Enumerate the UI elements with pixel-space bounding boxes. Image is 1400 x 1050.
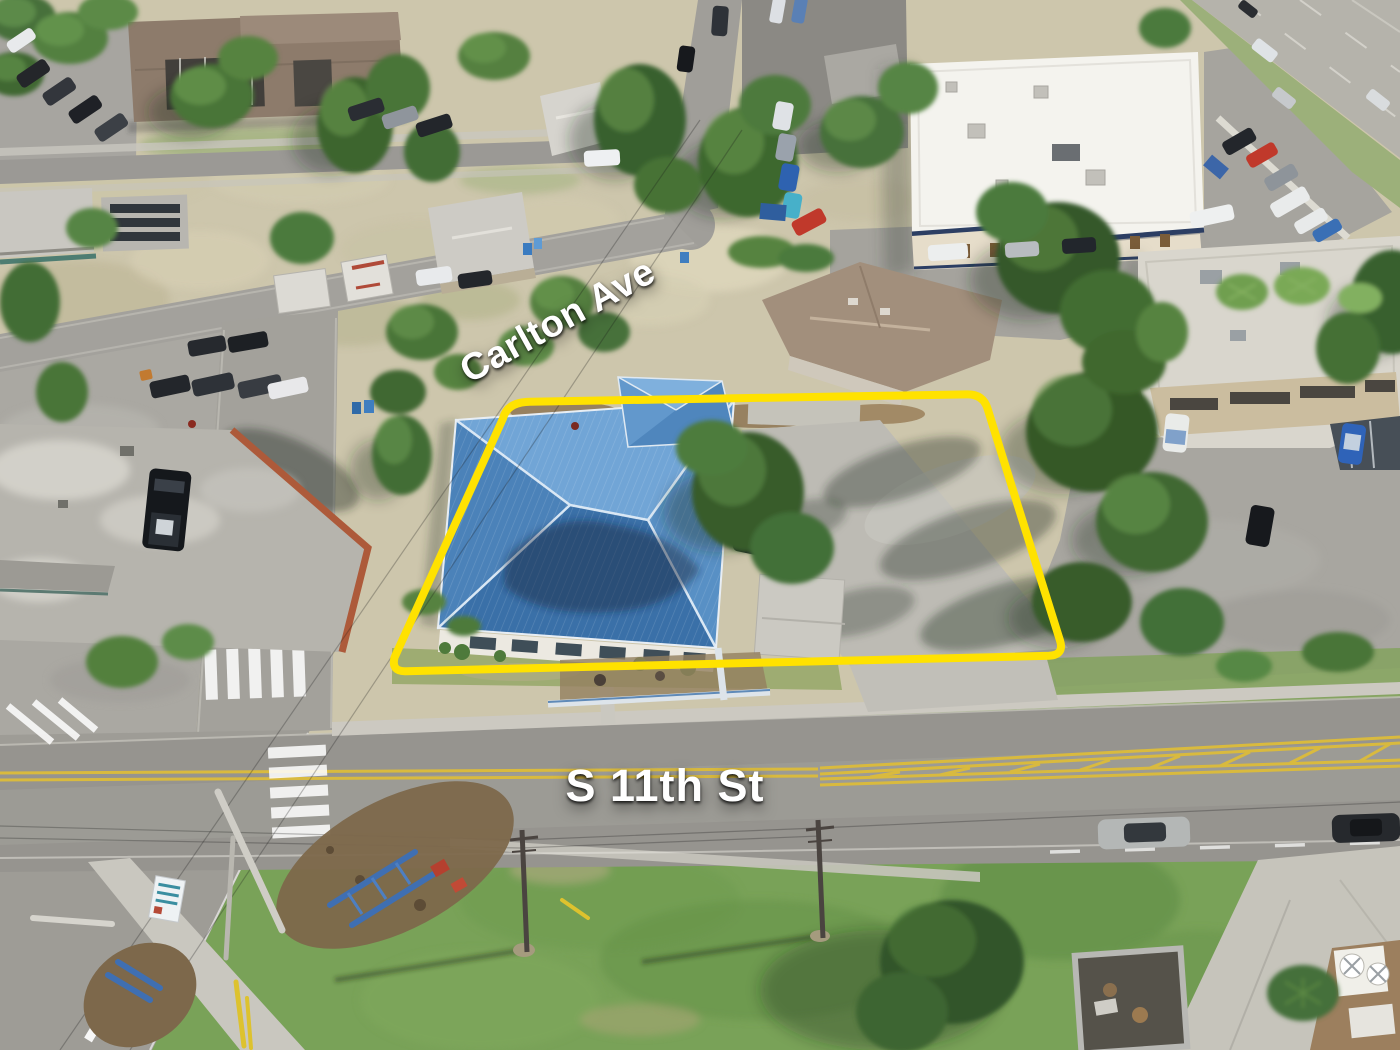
tree xyxy=(856,972,948,1050)
tree xyxy=(976,182,1048,242)
fire-hydrant xyxy=(188,420,196,428)
tree xyxy=(1139,8,1191,48)
car xyxy=(1332,813,1400,843)
tree xyxy=(1216,650,1272,682)
tree xyxy=(778,244,834,272)
tree xyxy=(458,32,530,80)
shed-bottom-right xyxy=(1075,948,1188,1050)
tree xyxy=(372,415,432,495)
monument-sign xyxy=(759,203,786,221)
tree xyxy=(66,208,118,248)
tree xyxy=(218,36,278,80)
tree xyxy=(386,304,458,360)
fire-hydrant xyxy=(571,422,579,430)
tree xyxy=(270,212,334,264)
aerial-photo: Carlton Ave S 11th St xyxy=(0,0,1400,1050)
car xyxy=(1098,816,1191,849)
tree xyxy=(370,370,426,414)
aerial-photo-canvas xyxy=(0,0,1400,1050)
tree xyxy=(162,624,214,660)
tree xyxy=(86,636,158,688)
car xyxy=(927,243,968,262)
tree xyxy=(0,262,60,342)
street-label-s-11th-st: S 11th St xyxy=(515,760,815,812)
trash-bin xyxy=(364,400,374,413)
car xyxy=(1162,413,1190,453)
trash-bin xyxy=(352,402,361,414)
tree xyxy=(1316,312,1380,384)
patio-slab xyxy=(754,574,844,660)
tree xyxy=(1140,588,1224,656)
car xyxy=(1062,237,1097,254)
tree xyxy=(1096,472,1208,572)
car xyxy=(1005,241,1040,258)
tree xyxy=(1302,632,1374,672)
car xyxy=(584,149,621,167)
tree xyxy=(676,420,748,476)
tree xyxy=(878,62,938,114)
pickup-truck xyxy=(142,468,192,552)
car xyxy=(711,5,729,36)
tree xyxy=(36,362,88,422)
tree xyxy=(750,512,834,584)
